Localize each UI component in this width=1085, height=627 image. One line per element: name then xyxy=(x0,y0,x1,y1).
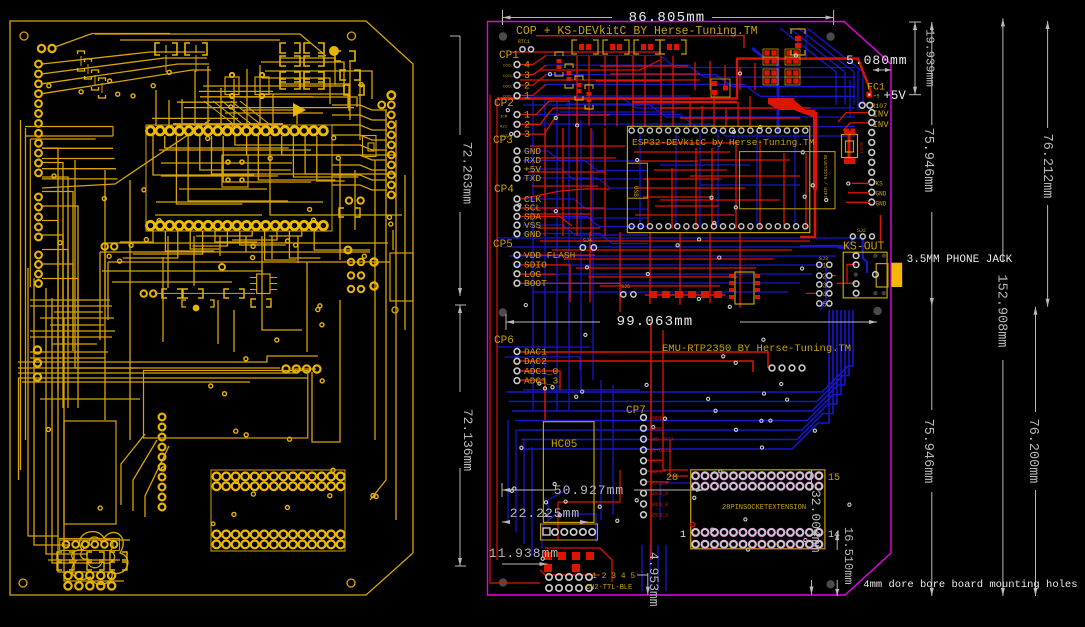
svg-text:72.136mm: 72.136mm xyxy=(460,409,475,472)
svg-text:11.938mm: 11.938mm xyxy=(489,546,559,561)
svg-text:USB: USB xyxy=(632,186,639,197)
svg-text:CP5: CP5 xyxy=(493,239,513,251)
svg-text:SJ4: SJ4 xyxy=(583,238,592,244)
svg-text:3: 3 xyxy=(524,71,530,82)
svg-text:86.805mm: 86.805mm xyxy=(629,10,706,26)
svg-text:4.953mm: 4.953mm xyxy=(646,552,661,607)
svg-text:4mm dore bore board mounting h: 4mm dore bore board mounting holes xyxy=(863,579,1077,591)
svg-text:CP6: CP6 xyxy=(494,335,514,347)
svg-text:76.200mm: 76.200mm xyxy=(1025,419,1040,484)
svg-text:RESET: RESET xyxy=(858,142,862,155)
svg-text:3: 3 xyxy=(823,283,827,291)
svg-text:15: 15 xyxy=(828,473,840,484)
svg-text:32.004mm: 32.004mm xyxy=(808,490,823,553)
svg-text:152.908mm: 152.908mm xyxy=(994,275,1009,348)
svg-text:GND: GND xyxy=(876,201,887,208)
svg-text:22.225mm: 22.225mm xyxy=(510,506,580,521)
svg-text:4: 4 xyxy=(823,291,827,299)
svg-text:1 2 3 4 5: 1 2 3 4 5 xyxy=(592,572,635,581)
svg-text:RTC1: RTC1 xyxy=(518,39,530,45)
svg-text:TXD: TXD xyxy=(524,173,541,184)
svg-text:ADC1_3: ADC1_3 xyxy=(650,513,668,519)
svg-text:COIL: COIL xyxy=(503,75,513,79)
svg-text:1: 1 xyxy=(823,263,827,271)
svg-text:CP2: CP2 xyxy=(494,98,514,110)
svg-text:19.939mm: 19.939mm xyxy=(923,29,937,87)
svg-text:GND: GND xyxy=(524,229,541,240)
svg-text:99.063mm: 99.063mm xyxy=(617,314,694,330)
svg-text:2: 2 xyxy=(823,274,827,282)
svg-text:16.510mm: 16.510mm xyxy=(841,527,855,585)
svg-text:SJ2: SJ2 xyxy=(857,228,866,234)
svg-text:ADC1_0: ADC1_0 xyxy=(650,491,668,497)
svg-text:COIL: COIL xyxy=(503,85,513,89)
svg-text:4: 4 xyxy=(524,61,530,72)
svg-text:5.080mm: 5.080mm xyxy=(846,53,908,68)
svg-text:A21: A21 xyxy=(500,125,508,129)
svg-text:5: 5 xyxy=(823,302,827,310)
svg-text:76.212mm: 76.212mm xyxy=(1039,134,1054,199)
svg-text:2: 2 xyxy=(524,81,530,92)
svg-text:+5: +5 xyxy=(874,94,880,100)
svg-text:CP4: CP4 xyxy=(494,184,514,196)
svg-text:3: 3 xyxy=(524,130,530,141)
svg-text:28PINSOCKETEXTENSION: 28PINSOCKETEXTENSION xyxy=(722,504,806,512)
svg-text:KS-OUT: KS-OUT xyxy=(843,241,885,254)
svg-text:50.927mm: 50.927mm xyxy=(554,483,624,498)
svg-text:ESP32-DEVkitC by Herse-Tuning.: ESP32-DEVkitC by Herse-Tuning.TM xyxy=(632,137,815,148)
svg-text:EMU-RTP2350 BY Herse-Tuning.TM: EMU-RTP2350 BY Herse-Tuning.TM xyxy=(662,343,851,355)
svg-text:72.263mm: 72.263mm xyxy=(460,142,475,205)
svg-text:+5V: +5V xyxy=(883,89,906,103)
svg-text:1: 1 xyxy=(524,92,530,103)
svg-text:75.946mm: 75.946mm xyxy=(920,128,935,193)
svg-text:HC05: HC05 xyxy=(551,439,577,451)
svg-text:1: 1 xyxy=(680,530,686,541)
svg-text:ADC1_3: ADC1_3 xyxy=(524,376,559,387)
svg-text:75.946mm: 75.946mm xyxy=(920,419,935,484)
svg-text:GND2: GND2 xyxy=(650,426,662,432)
svg-text:GND DATA: GND DATA xyxy=(650,437,674,443)
svg-text:ADC1_0: ADC1_0 xyxy=(650,502,668,508)
svg-text:COIL: COIL xyxy=(503,65,513,69)
svg-text:DAC1: DAC1 xyxy=(650,470,662,476)
svg-text:KS: KS xyxy=(876,181,884,188)
svg-text:CN2-TTL-BLE: CN2-TTL-BLE xyxy=(586,584,632,592)
svg-text:SJ5: SJ5 xyxy=(621,284,630,290)
svg-text:28: 28 xyxy=(666,473,678,484)
svg-text:SJ3: SJ3 xyxy=(819,256,828,262)
svg-text:COP + KS-DEVkitC BY Herse-Tuni: COP + KS-DEVkitC BY Herse-Tuning.TM xyxy=(516,25,758,38)
svg-text:ICM: ICM xyxy=(500,116,508,120)
svg-text:CP3: CP3 xyxy=(493,135,513,147)
svg-text:3.5MM PHONE JACK: 3.5MM PHONE JACK xyxy=(907,254,1013,266)
svg-text:DAC2: DAC2 xyxy=(650,459,662,465)
svg-text:BOOT: BOOT xyxy=(524,278,547,289)
svg-text:5V DATA: 5V DATA xyxy=(650,448,671,454)
svg-text:GND1: GND1 xyxy=(650,416,662,422)
svg-text:GND: GND xyxy=(876,191,887,198)
svg-text:BLUETOOTH / WIFI: BLUETOOTH / WIFI xyxy=(822,155,828,199)
svg-text:CP1: CP1 xyxy=(499,50,519,62)
